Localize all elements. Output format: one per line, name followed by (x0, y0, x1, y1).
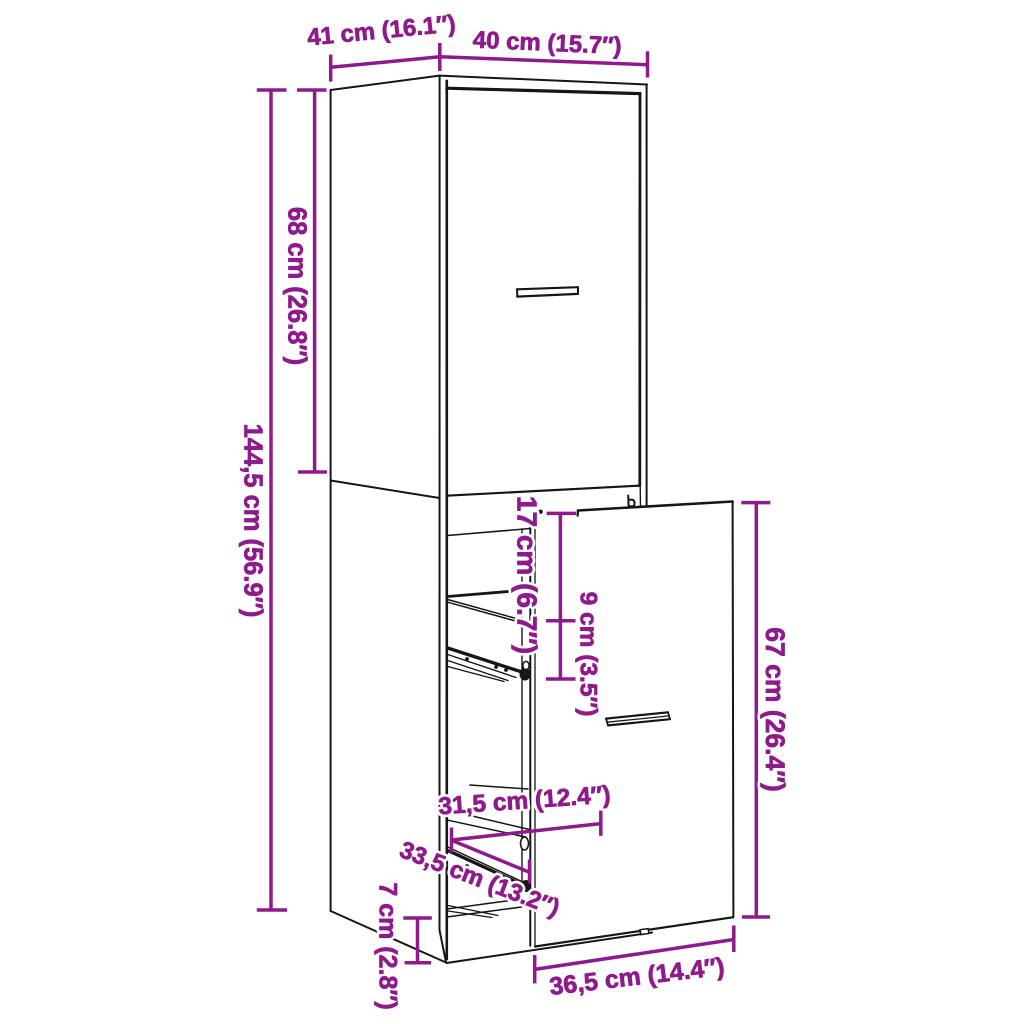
svg-text:67 cm (26.4″): 67 cm (26.4″) (760, 627, 790, 791)
svg-text:7 cm (2.8″): 7 cm (2.8″) (374, 882, 402, 1009)
svg-text:68 cm (26.8″): 68 cm (26.8″) (283, 207, 311, 365)
svg-text:17 cm (6.7″): 17 cm (6.7″) (512, 496, 543, 654)
svg-text:144,5 cm (56.9″): 144,5 cm (56.9″) (239, 424, 267, 618)
svg-text:9 cm (3.5″): 9 cm (3.5″) (575, 592, 602, 717)
